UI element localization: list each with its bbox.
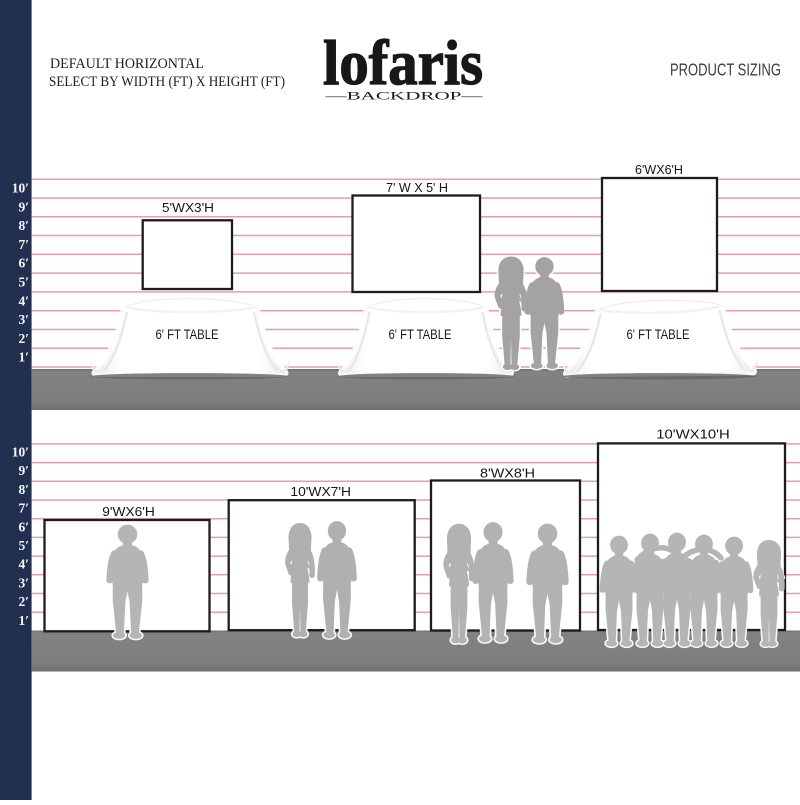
svg-text:—BACKDROP—: —BACKDROP— (324, 89, 484, 103)
svg-text:3′: 3′ (18, 575, 29, 590)
svg-text:1′: 1′ (18, 350, 29, 365)
svg-text:9′: 9′ (18, 199, 29, 214)
svg-text:8′: 8′ (18, 482, 29, 497)
svg-text:8′: 8′ (18, 218, 29, 233)
svg-text:6′: 6′ (18, 256, 29, 271)
svg-text:6'WX6'H: 6'WX6'H (635, 162, 683, 177)
svg-text:2′: 2′ (18, 594, 29, 609)
svg-text:10'WX10'H: 10'WX10'H (656, 427, 730, 442)
svg-text:4′: 4′ (18, 293, 29, 308)
svg-text:DEFAULT HORIZONTAL: DEFAULT HORIZONTAL (50, 56, 204, 72)
svg-text:7′: 7′ (18, 501, 29, 516)
svg-text:PRODUCT SIZING: PRODUCT SIZING (670, 60, 781, 80)
svg-text:10'WX7'H: 10'WX7'H (290, 484, 351, 499)
svg-text:lofaris: lofaris (323, 28, 483, 98)
svg-text:5'WX3'H: 5'WX3'H (162, 200, 214, 215)
svg-text:6' FT TABLE: 6' FT TABLE (627, 327, 690, 342)
svg-text:4′: 4′ (18, 557, 29, 572)
svg-text:6' FT TABLE: 6' FT TABLE (156, 327, 219, 342)
svg-text:3′: 3′ (18, 312, 29, 327)
svg-text:8'WX8'H: 8'WX8'H (480, 466, 535, 481)
svg-text:9'WX6'H: 9'WX6'H (102, 504, 155, 519)
svg-text:6' FT TABLE: 6' FT TABLE (389, 327, 452, 342)
svg-text:2′: 2′ (18, 331, 29, 346)
svg-text:5′: 5′ (18, 538, 29, 553)
svg-text:7' W X 5' H: 7' W X 5' H (386, 180, 448, 195)
svg-text:SELECT BY WIDTH (FT) X HEIGHT: SELECT BY WIDTH (FT) X HEIGHT (FT) (49, 74, 285, 90)
svg-text:10′: 10′ (12, 181, 29, 196)
svg-text:6′: 6′ (18, 519, 29, 534)
svg-text:1′: 1′ (18, 613, 29, 628)
svg-text:7′: 7′ (18, 237, 29, 252)
svg-text:9′: 9′ (18, 463, 29, 478)
svg-text:5′: 5′ (18, 275, 29, 290)
svg-text:10′: 10′ (12, 445, 29, 460)
